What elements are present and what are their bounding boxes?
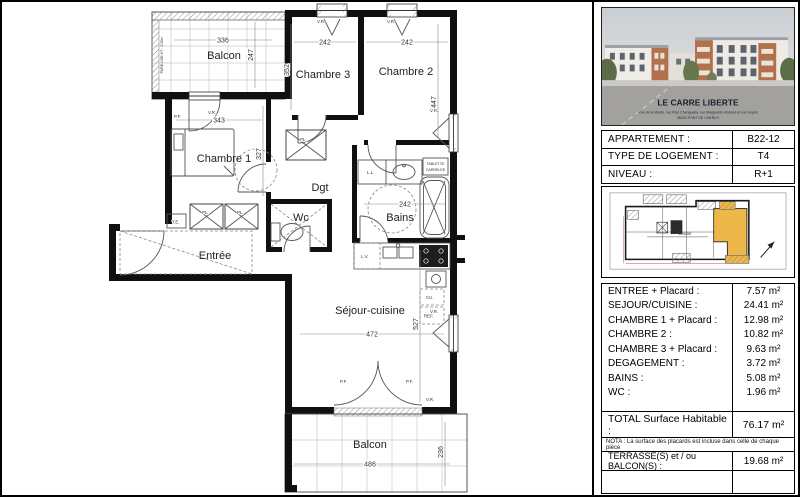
dim-ch2-w: 242 [401,40,413,47]
pare-vue-screen [152,12,285,20]
pl-label: PL. [202,210,209,215]
cooktop-icon [419,245,448,267]
kitchen-sink-icon [383,247,397,258]
room-label-wc: Wc [293,212,309,224]
dim-ch3-w: 242 [319,40,331,47]
areas-table: ENTREE + Placard : 7.57 m² SEJOUR/CUISIN… [601,283,795,412]
dim-balcon-bottom-w: 486 [364,462,376,469]
area-label: BAINS : [602,373,732,384]
vr-label: V.R. [208,110,216,115]
blank-row [602,470,794,493]
entry-zone [120,231,252,274]
balcony-bottom: 486 236 Balcon [285,414,467,492]
room-label-chambre3: Chambre 3 [296,69,350,81]
area-label: SEJOUR/CUISINE : [602,300,732,311]
area-row: ENTREE + Placard : 7.57 m² [602,284,794,299]
terrace-label: TERRASSE(S) et / ou BALCON(S) : [602,451,732,471]
area-row: WC : 1.96 m² [602,386,794,401]
tiled-shelf-box [423,158,448,175]
door-chambre2 [368,145,396,173]
dim-sejour-h: 527 [413,318,420,330]
area-row: SEJOUR/CUISINE : 24.41 m² [602,299,794,314]
room-label-balcon-top: Balcon [207,50,241,62]
area-value: 3.72 m² [732,357,794,372]
photo-address: Rue de la liberté, rue Paul Chenguelia, … [638,110,758,114]
dim-ch3-h: 352 [284,64,291,76]
area-value: 24.41 m² [732,299,794,314]
pare-vue-note: PARE-VUE HT : 2.00m [160,37,164,74]
info-label: NIVEAU : [602,169,732,180]
door-chambre1 [238,164,266,192]
plan-sheet: PARE-VUE HT : 2.00m 336 247 Balcon [0,0,800,497]
unit-locator-plan: Couloir [601,186,795,278]
area-label: ENTREE + Placard : [602,286,732,297]
tablette-label-1: TABLETTE [427,162,446,166]
dim-ch1-h: 327 [256,148,263,160]
dim-bains-w: 242 [399,202,411,209]
total-row: TOTAL Surface Habitable : 76.17 m² [602,412,794,437]
turning-circle-bains [368,185,416,233]
nota-text: NOTA : La surface des placards est inclu… [602,437,794,451]
toilet-icon [271,204,327,247]
info-row-appartement: APPARTEMENT : B22-12 [602,131,794,148]
french-door-sejour: P.F. P.F. V.R. [334,361,434,416]
area-label: WC : [602,387,732,398]
placard-chambre1: PL. PL. [190,204,258,229]
window-chambre3: V.R. [317,4,347,35]
balcony-top: PARE-VUE HT : 2.00m 336 247 Balcon [152,12,285,99]
pf-label: P.F. [406,379,413,384]
info-label: TYPE DE LOGEMENT : [602,151,732,162]
info-table: APPARTEMENT : B22-12 TYPE DE LOGEMENT : … [601,130,795,184]
area-label: CHAMBRE 3 + Placard : [602,344,732,355]
door-wc [284,226,310,252]
lv-label: L.V. [361,254,368,259]
info-value: B22-12 [732,131,794,148]
area-value: 12.98 m² [732,313,794,328]
totals-table: TOTAL Surface Habitable : 76.17 m² NOTA … [601,412,795,494]
room-label-sejour: Séjour-cuisine [335,305,405,317]
window-chambre2: V.R. [387,4,417,35]
area-value: 5.08 m² [732,371,794,386]
info-value: R+1 [732,166,794,183]
dim-balcon-bottom-h: 236 [438,446,445,458]
room-label-bains: Bains [386,212,414,224]
ref-label: REF. [424,314,434,319]
area-row: CHAMBRE 3 + Placard : 9.63 m² [602,342,794,357]
pl-label: PL. [300,137,307,142]
pf-label: P.F. [174,114,181,119]
dim-ch2-h: 447 [431,96,438,108]
corridor-label: Couloir [678,231,692,236]
boiler-box [426,271,446,287]
dim-ch1-w: 343 [213,118,225,125]
pl-label: PL. [237,210,244,215]
area-row: BAINS : 5.08 m² [602,371,794,386]
dim-balcon-top-w: 336 [217,38,229,45]
area-row: CHAMBRE 2 : 10.82 m² [602,328,794,343]
vr-label: V.R. [387,19,395,24]
area-label: CHAMBRE 1 + Placard : [602,315,732,326]
total-value: 76.17 m² [732,412,794,437]
area-value: 10.82 m² [732,328,794,343]
room-label-entree: Entrée [199,250,231,262]
area-value: 9.63 m² [732,342,794,357]
door-bains [360,216,388,242]
terrace-row: TERRASSE(S) et / ou BALCON(S) : 19.68 m² [602,451,794,470]
area-spacer-row [602,400,794,411]
dim-balcon-top-h: 247 [248,49,255,61]
info-value: T4 [732,149,794,166]
window-bains: V.R. [430,108,458,152]
door-entry [120,231,164,275]
area-label: CHAMBRE 2 : [602,329,732,340]
room-label-chambre2: Chambre 2 [379,66,433,78]
area-value: 1.96 m² [732,386,794,401]
dim-sejour-w: 472 [366,332,378,339]
area-label: DEGAGEMENT : [602,358,732,369]
tablette-label-2: CARRELEE [426,168,446,172]
room-label-dgt: Dgt [311,182,328,194]
room-label-balcon-bottom: Balcon [353,439,387,451]
photo-caption: LE CARRE LIBERTE [657,98,739,108]
placard-dgt: PL. [286,130,326,160]
terrace-value: 19.68 m² [732,452,794,470]
area-row: CHAMBRE 1 + Placard : 12.98 m² [602,313,794,328]
sidebar: LE CARRE LIBERTE Rue de la liberté, rue … [592,2,800,495]
info-row-niveau: NIVEAU : R+1 [602,165,794,183]
room-label-chambre1: Chambre 1 [197,153,251,165]
area-row: DEGAGEMENT : 3.72 m² [602,357,794,372]
area-value: 7.57 m² [732,284,794,299]
te-label: T.E. [172,220,180,225]
vr-label: V.R. [426,397,434,402]
bathtub-icon [420,177,449,238]
vr-label: V.R. [317,19,325,24]
photo-city: 38230 PONT DE CHERUY [677,116,720,120]
bathroom-fixtures: L.L. TABLETTE CARRELEE [358,158,449,238]
total-label: TOTAL Surface Habitable : [602,413,732,437]
floor-plan: PARE-VUE HT : 2.00m 336 247 Balcon [2,2,590,495]
building-photo: LE CARRE LIBERTE Rue de la liberté, rue … [601,7,795,126]
washer-label: L.L. [367,170,374,175]
info-label: APPARTEMENT : [602,134,732,145]
pf-label: P.F. [340,379,347,384]
info-row-type: TYPE DE LOGEMENT : T4 [602,148,794,166]
cu-label: CU. [426,295,434,300]
